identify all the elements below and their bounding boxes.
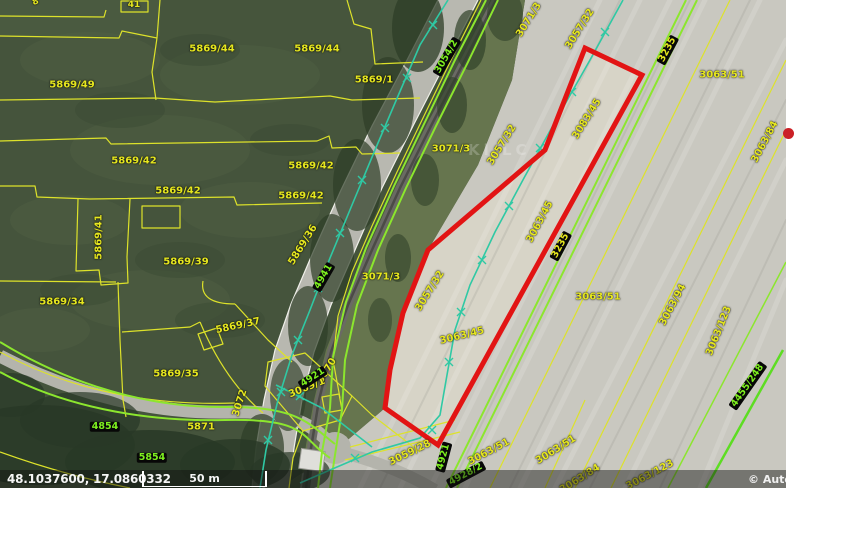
statusbar: 48.1037600, 17.0860332 50 m © Autor xyxy=(0,470,786,488)
app-window: 5869/445869/445869/495869/15869/425869/4… xyxy=(0,0,848,556)
map-marker-dot xyxy=(783,128,794,139)
copyright-text: © Autor xyxy=(748,473,786,486)
map-graphics xyxy=(0,0,786,488)
scale-bar: 50 m xyxy=(142,471,267,487)
scale-bar-label: 50 m xyxy=(144,472,265,485)
map-canvas[interactable]: 5869/445869/445869/495869/15869/425869/4… xyxy=(0,0,786,488)
